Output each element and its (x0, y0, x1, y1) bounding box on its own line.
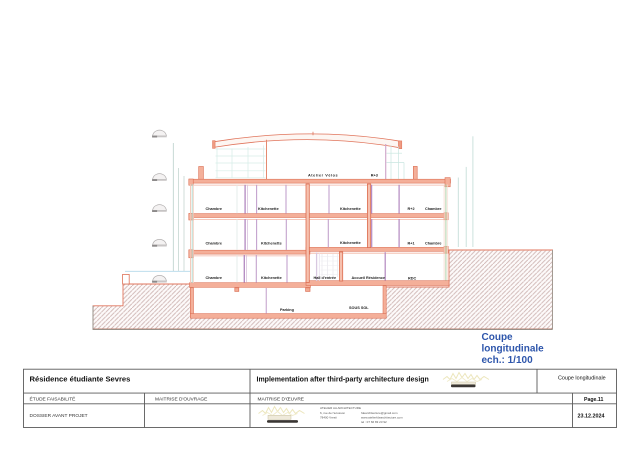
svg-text:ÉTUDE FAISABILITÉ: ÉTUDE FAISABILITÉ (30, 395, 76, 402)
svg-text:Kitchenette: Kitchenette (258, 207, 279, 211)
svg-text:longitudinale: longitudinale (482, 344, 545, 355)
svg-text:23.12.2024: 23.12.2024 (578, 414, 605, 420)
svg-text:MAITRISE D'ŒUVRE: MAITRISE D'ŒUVRE (258, 396, 305, 402)
svg-text:Accueil Résidence: Accueil Résidence (352, 276, 386, 280)
svg-text:Kitchenette: Kitchenette (261, 276, 282, 280)
svg-text:SOUS SOL: SOUS SOL (349, 306, 369, 310)
svg-text:Chambre: Chambre (425, 207, 441, 211)
svg-text:Kitchenette: Kitchenette (261, 241, 282, 245)
svg-text:Implementation after third-par: Implementation after third-party archite… (257, 377, 429, 384)
svg-text:R+2: R+2 (408, 207, 415, 211)
svg-text:R+3: R+3 (371, 174, 378, 178)
svg-text:Hall d'entrée: Hall d'entrée (314, 276, 337, 280)
svg-text:R+1: R+1 (408, 241, 415, 245)
svg-text:www.atelierfdearchitecture.com: www.atelierfdearchitecture.com (361, 416, 403, 420)
svg-text:fdearchitecture@gmail.com: fdearchitecture@gmail.com (361, 411, 398, 415)
svg-text:Atelier Vélos: Atelier Vélos (308, 174, 338, 178)
svg-text:ATELIER AA ARCHITECTURE: ATELIER AA ARCHITECTURE (320, 406, 361, 410)
svg-text:Kitchenette: Kitchenette (340, 241, 361, 245)
svg-text:Kitchenette: Kitchenette (340, 207, 361, 211)
svg-text:Chambre: Chambre (425, 241, 441, 245)
svg-text:Coupe longitudinale: Coupe longitudinale (558, 376, 606, 382)
svg-text:Chambre: Chambre (206, 276, 222, 280)
svg-text:ech.: 1/100: ech.: 1/100 (482, 355, 534, 366)
svg-text:Chambre: Chambre (206, 207, 222, 211)
svg-text:Résidence étudiante Sevres: Résidence étudiante Sevres (30, 375, 131, 384)
svg-text:Parking: Parking (280, 308, 295, 312)
svg-text:6, rue de l'écusson: 6, rue de l'écusson (320, 411, 345, 415)
svg-text:DOSSIER AVANT PROJET: DOSSIER AVANT PROJET (30, 413, 88, 419)
svg-text:MAITRISE D'OUVRAGE: MAITRISE D'OUVRAGE (155, 396, 207, 402)
svg-text:Page.11: Page.11 (584, 397, 603, 403)
svg-text:Coupe: Coupe (482, 332, 514, 343)
svg-text:tel : 07 66 83 23 92: tel : 07 66 83 23 92 (361, 420, 387, 424)
svg-text:78400 Vresti: 78400 Vresti (320, 416, 337, 420)
svg-text:RDC: RDC (408, 277, 416, 281)
svg-text:Chambre: Chambre (206, 241, 222, 245)
